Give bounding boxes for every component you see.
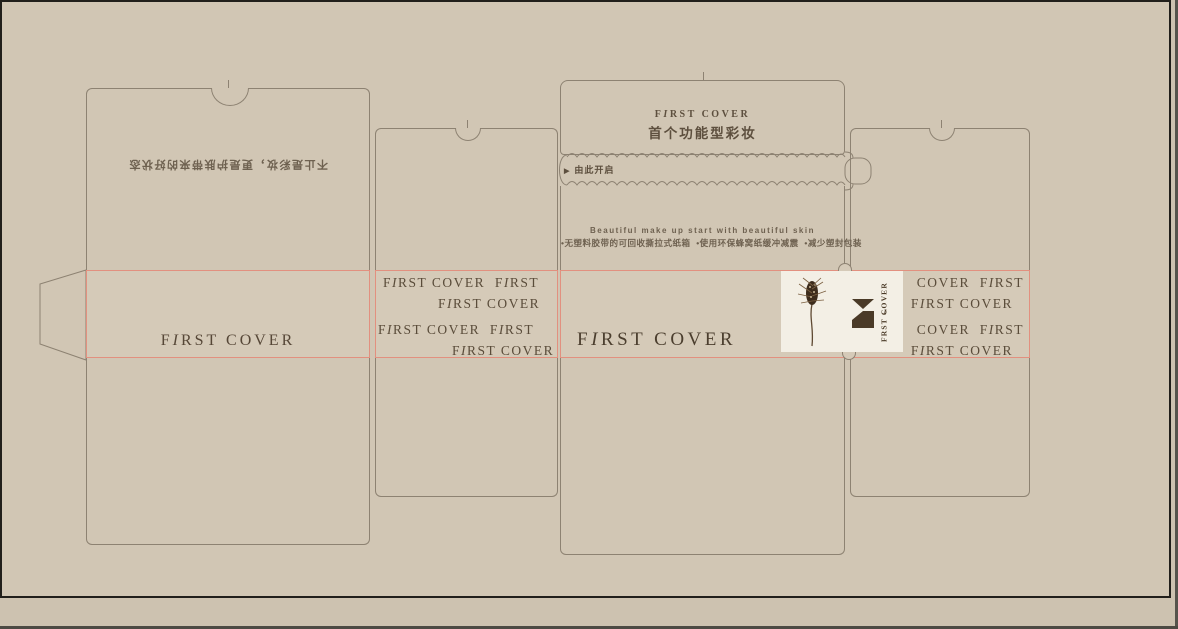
- flap-top-left: 不止是彩妆，更是护肤带来的好状态: [86, 88, 370, 270]
- thumb-notch: [838, 263, 852, 271]
- arrow-icon: ▶: [564, 168, 570, 175]
- panel-pattern-left: FIRST COVER FIRST FIRST COVER FIRST COVE…: [375, 270, 558, 358]
- flap-bottom-center: [560, 358, 845, 555]
- pattern-line: COVER FIRST: [917, 275, 1024, 291]
- pattern-line: FIRST COVER FIRST: [378, 322, 534, 338]
- dried-flower-photo: [789, 276, 835, 348]
- eco-line-english: Beautiful make up start with beautiful s…: [561, 226, 844, 235]
- flap-bottom-midleft: [375, 358, 558, 497]
- brand-logotype-side: FIRST COVER: [87, 332, 369, 350]
- pattern-line: FIRST COVER: [452, 343, 554, 359]
- open-here-text: 由此开启: [574, 165, 614, 175]
- pattern-line: FIRST COVER: [911, 296, 1013, 312]
- registration-tick: [228, 80, 229, 88]
- brand-tagline: 首个功能型彩妆: [561, 122, 844, 142]
- registration-tick: [941, 120, 942, 128]
- panel-side-left: FIRST COVER: [86, 270, 370, 358]
- registration-tick: [703, 72, 704, 80]
- flap-top-center: FIRST COVER 首个功能型彩妆: [560, 80, 845, 155]
- vertical-brand-text: FIRST COVER: [877, 280, 891, 344]
- eco-line-chinese: •无塑料胶带的可回收撕拉式纸箱 •使用环保蜂窝纸缓冲减震 •减少塑封包装: [561, 237, 844, 249]
- pattern-line: FIRST COVER: [911, 343, 1013, 359]
- packaging-dieline-canvas: 不止是彩妆，更是护肤带来的好状态 FIRST COVER 首个功能型彩妆 ▶由此…: [0, 0, 1178, 629]
- glue-tab: [38, 268, 88, 362]
- pattern-line: FIRST COVER: [438, 296, 540, 312]
- fc-monogram-logo: [851, 299, 875, 329]
- pattern-line: COVER FIRST: [917, 322, 1024, 338]
- thumb-notch: [455, 128, 481, 141]
- flap-bottom-left: [86, 358, 370, 545]
- panel-eco-copy: Beautiful make up start with beautiful s…: [560, 186, 845, 270]
- thumb-notch: [929, 128, 955, 141]
- brand-logotype-small: FIRST COVER: [561, 109, 844, 120]
- flap-bottom-right: [850, 358, 1030, 497]
- open-here-label: ▶由此开启: [564, 163, 614, 176]
- flap-top-midleft: [375, 128, 558, 270]
- slogan-text-upside-down: 不止是彩妆，更是护肤带来的好状态: [87, 157, 369, 173]
- pattern-line: FIRST COVER FIRST: [383, 275, 539, 291]
- vertical-brand-label: FIRST COVER: [880, 282, 889, 342]
- brand-photo-card: FIRST COVER: [781, 271, 903, 352]
- thumb-notch: [211, 88, 249, 106]
- brand-logotype-front: FIRST COVER: [577, 329, 736, 351]
- registration-tick: [467, 120, 468, 128]
